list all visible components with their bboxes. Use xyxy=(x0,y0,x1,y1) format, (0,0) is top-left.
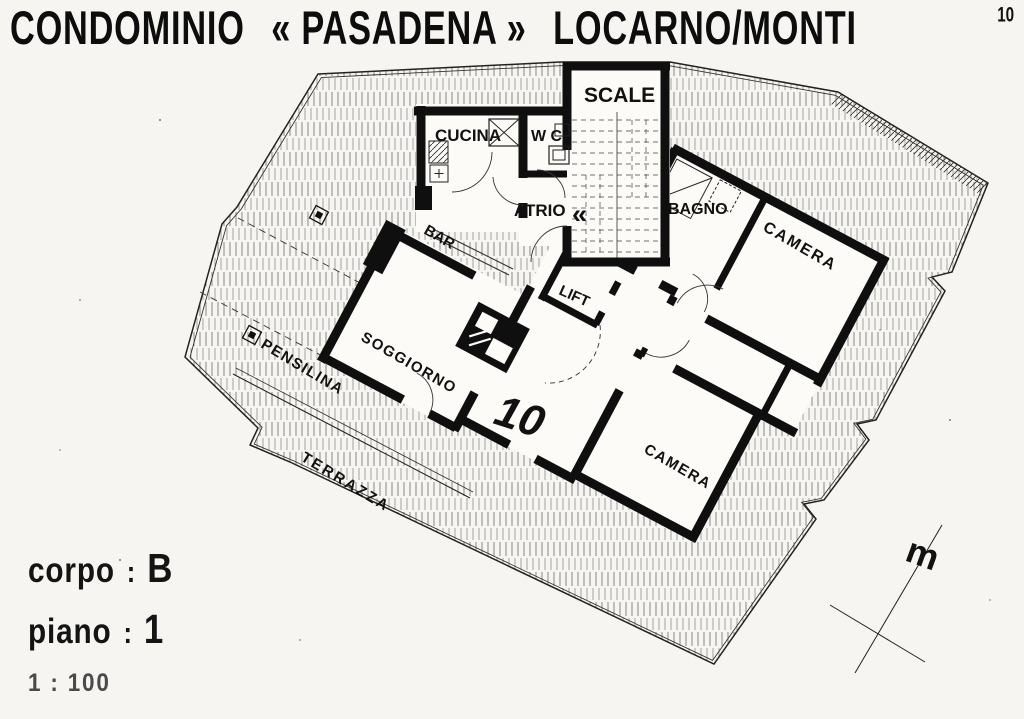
north-arrow: m xyxy=(830,525,945,673)
legend: corpo : B piano : 1 1 : 100 xyxy=(28,545,198,698)
drawing-sheet: CONDOMINIO « PASADENA » LOCARNO/MONTI 10 xyxy=(0,0,1024,719)
drawing-scale: 1 : 100 xyxy=(28,669,181,698)
piano-value: 1 xyxy=(144,606,163,653)
room-label-atrio: ATRIO xyxy=(514,201,566,220)
room-label-bagno: BAGNO xyxy=(668,201,728,218)
legend-corpo: corpo : B xyxy=(28,545,172,592)
piano-label: piano xyxy=(28,612,112,652)
piano-colon: : xyxy=(123,617,132,651)
room-label-scale: SCALE xyxy=(584,84,655,107)
legend-piano: piano : 1 xyxy=(28,606,172,653)
room-label-wc: W C xyxy=(531,128,563,145)
corpo-label: corpo xyxy=(28,551,115,591)
corpo-colon: : xyxy=(127,556,136,590)
north-marker-glyph: m xyxy=(901,529,945,578)
room-label-cucina: CUCINA xyxy=(435,126,501,145)
stair-door-symbol: « xyxy=(572,199,587,229)
corpo-value: B xyxy=(147,545,172,592)
